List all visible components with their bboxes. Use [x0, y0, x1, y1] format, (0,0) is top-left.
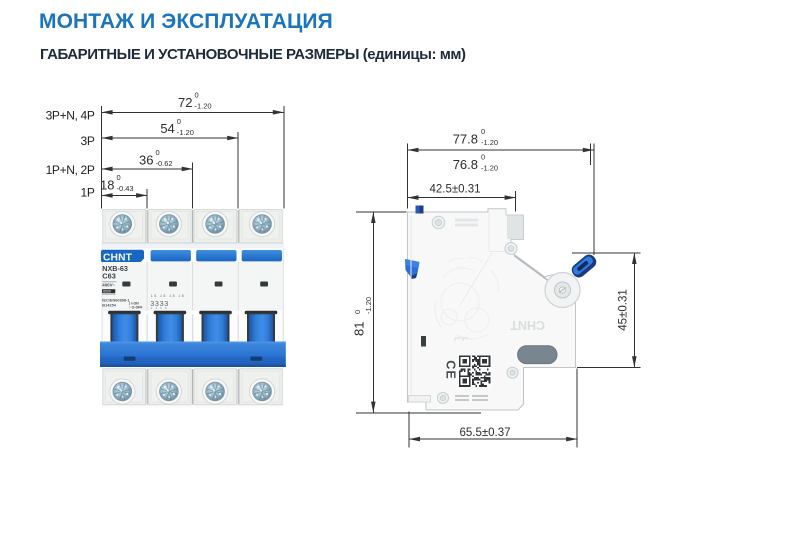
svg-text:77.8: 77.8: [453, 131, 478, 146]
svg-text:-1.20: -1.20: [364, 297, 373, 314]
svg-text:400V~: 400V~: [102, 283, 115, 288]
svg-text:36: 36: [139, 153, 153, 168]
svg-text:2 4 6 8: 2 4 6 8: [151, 306, 168, 310]
svg-text:18 18 18 18: 18 18 18 18: [151, 294, 185, 298]
svg-text:1P+N, 2P: 1P+N, 2P: [46, 163, 95, 177]
svg-text:65.5±0.37: 65.5±0.37: [459, 427, 510, 439]
svg-text:0: 0: [481, 152, 485, 161]
svg-text:42.5±0.31: 42.5±0.31: [429, 184, 480, 196]
svg-text:0: 0: [195, 91, 199, 100]
svg-text:-1.20: -1.20: [481, 138, 498, 147]
svg-text:0: 0: [117, 173, 121, 182]
svg-text:72: 72: [178, 95, 192, 110]
svg-text:1P: 1P: [81, 185, 95, 199]
svg-text:C63: C63: [102, 271, 116, 280]
svg-text:54: 54: [160, 121, 174, 136]
svg-text:CE: CE: [444, 360, 458, 380]
svg-text:0: 0: [353, 310, 362, 314]
svg-text:3P+N, 4P: 3P+N, 4P: [46, 108, 95, 122]
svg-text:0: 0: [481, 127, 485, 136]
svg-text:○ O-OFF: ○ O-OFF: [129, 305, 144, 309]
svg-text:-1.20: -1.20: [177, 128, 194, 137]
svg-text:0: 0: [177, 117, 181, 126]
svg-text:-1.20: -1.20: [195, 102, 212, 111]
svg-text:6000: 6000: [103, 290, 111, 294]
svg-text:-0.43: -0.43: [117, 184, 134, 193]
svg-text:76.8: 76.8: [453, 157, 478, 172]
svg-text:CHNT: CHNT: [510, 318, 545, 332]
svg-text:0: 0: [156, 148, 160, 157]
svg-text:45±0.31: 45±0.31: [618, 289, 630, 331]
svg-text:18: 18: [100, 177, 114, 192]
svg-text:-0.62: -0.62: [156, 159, 173, 168]
svg-text:B14254: B14254: [102, 303, 116, 308]
svg-text:81: 81: [352, 322, 367, 336]
svg-text:-1.20: -1.20: [481, 163, 498, 172]
svg-text:3P: 3P: [81, 134, 95, 148]
